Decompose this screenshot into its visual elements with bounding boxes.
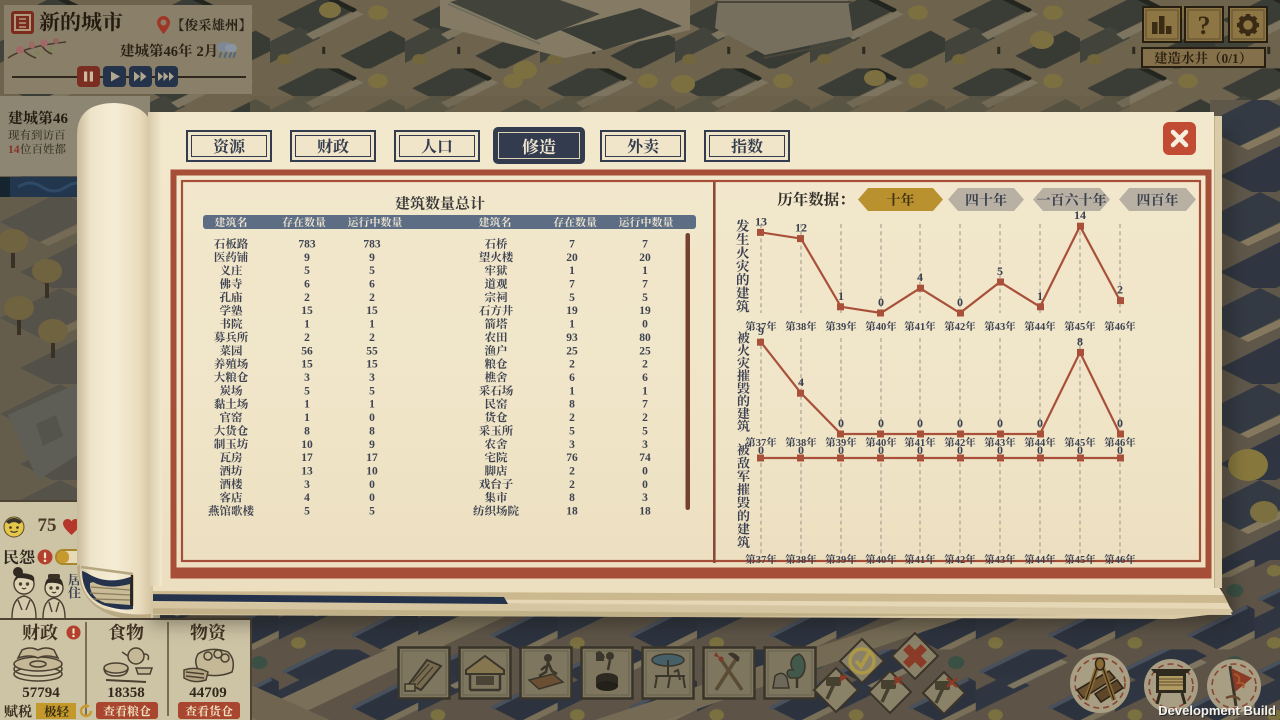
svg-text:6: 6 bbox=[304, 279, 310, 291]
svg-text:0: 0 bbox=[997, 443, 1003, 457]
svg-text:1: 1 bbox=[569, 319, 575, 331]
svg-text:9: 9 bbox=[304, 252, 310, 264]
svg-text:0: 0 bbox=[1037, 443, 1043, 457]
svg-text:1: 1 bbox=[304, 319, 310, 331]
svg-text:41: 41 bbox=[915, 322, 926, 333]
svg-text:45: 45 bbox=[1075, 555, 1086, 566]
svg-text:17: 17 bbox=[366, 452, 378, 464]
svg-text:6: 6 bbox=[569, 372, 575, 384]
svg-text:0: 0 bbox=[957, 443, 963, 457]
svg-text:19: 19 bbox=[639, 305, 651, 317]
svg-text:1: 1 bbox=[369, 399, 375, 411]
svg-text:6: 6 bbox=[642, 372, 648, 384]
svg-text:39: 39 bbox=[836, 555, 847, 566]
svg-text:2: 2 bbox=[369, 332, 375, 344]
svg-text:0: 0 bbox=[878, 295, 884, 309]
svg-text:3: 3 bbox=[304, 372, 310, 384]
svg-text:2: 2 bbox=[569, 359, 575, 371]
svg-text:46: 46 bbox=[1115, 555, 1126, 566]
svg-text:0: 0 bbox=[642, 465, 648, 477]
svg-text:55: 55 bbox=[366, 345, 378, 357]
svg-text:56: 56 bbox=[301, 345, 313, 357]
svg-text:0: 0 bbox=[1077, 443, 1083, 457]
svg-text:0: 0 bbox=[838, 416, 844, 430]
svg-text:13: 13 bbox=[301, 465, 313, 477]
svg-text:2: 2 bbox=[1117, 283, 1123, 297]
svg-text:9: 9 bbox=[369, 252, 375, 264]
svg-text:2: 2 bbox=[304, 292, 310, 304]
svg-text:1: 1 bbox=[304, 399, 310, 411]
svg-text:1: 1 bbox=[838, 289, 844, 303]
svg-text:9: 9 bbox=[758, 324, 764, 338]
svg-text:6: 6 bbox=[369, 279, 375, 291]
svg-text:2: 2 bbox=[642, 412, 648, 424]
svg-text:0: 0 bbox=[1117, 443, 1123, 457]
svg-text:38: 38 bbox=[796, 555, 807, 566]
svg-text:3: 3 bbox=[569, 439, 575, 451]
svg-text:783: 783 bbox=[298, 239, 316, 251]
svg-text:9: 9 bbox=[369, 439, 375, 451]
svg-text:8: 8 bbox=[1077, 334, 1083, 348]
svg-text:17: 17 bbox=[301, 452, 313, 464]
svg-text:4: 4 bbox=[798, 375, 804, 389]
svg-text:15: 15 bbox=[301, 305, 313, 317]
svg-text:8: 8 bbox=[304, 425, 310, 437]
svg-text:42: 42 bbox=[955, 555, 966, 566]
svg-text:783: 783 bbox=[363, 239, 381, 251]
svg-text:0: 0 bbox=[878, 416, 884, 430]
svg-text:5: 5 bbox=[304, 506, 310, 518]
svg-text:5: 5 bbox=[569, 292, 575, 304]
svg-text:0: 0 bbox=[997, 416, 1003, 430]
svg-text:25: 25 bbox=[566, 345, 578, 357]
svg-text:5: 5 bbox=[569, 425, 575, 437]
svg-text:0: 0 bbox=[369, 479, 375, 491]
svg-text:19: 19 bbox=[566, 305, 578, 317]
svg-text:93: 93 bbox=[566, 332, 578, 344]
svg-text:43: 43 bbox=[995, 555, 1006, 566]
svg-text:0: 0 bbox=[369, 492, 375, 504]
svg-text:25: 25 bbox=[639, 345, 651, 357]
svg-text:41: 41 bbox=[915, 555, 926, 566]
svg-text:3: 3 bbox=[642, 439, 648, 451]
svg-text:37: 37 bbox=[756, 555, 767, 566]
svg-text:14: 14 bbox=[8, 144, 20, 156]
svg-text:0: 0 bbox=[957, 295, 963, 309]
svg-text:3: 3 bbox=[369, 372, 375, 384]
svg-text:0: 0 bbox=[642, 479, 648, 491]
svg-text:1: 1 bbox=[1037, 289, 1043, 303]
svg-text:40: 40 bbox=[876, 555, 887, 566]
svg-text:10: 10 bbox=[301, 439, 313, 451]
svg-text:3: 3 bbox=[642, 492, 648, 504]
svg-text:80: 80 bbox=[639, 332, 651, 344]
svg-text:5: 5 bbox=[369, 385, 375, 397]
svg-text:44: 44 bbox=[1035, 322, 1046, 333]
svg-text:2: 2 bbox=[569, 479, 575, 491]
svg-text:5: 5 bbox=[997, 264, 1003, 278]
svg-text:0: 0 bbox=[878, 443, 884, 457]
svg-text:39: 39 bbox=[836, 322, 847, 333]
svg-text:2: 2 bbox=[304, 332, 310, 344]
svg-text:15: 15 bbox=[366, 305, 378, 317]
svg-text:46: 46 bbox=[1115, 322, 1126, 333]
svg-text:0: 0 bbox=[642, 319, 648, 331]
svg-text:5: 5 bbox=[369, 506, 375, 518]
svg-text:5: 5 bbox=[369, 265, 375, 277]
svg-text:15: 15 bbox=[301, 359, 313, 371]
svg-text:2: 2 bbox=[569, 465, 575, 477]
svg-text:2: 2 bbox=[369, 292, 375, 304]
svg-text:38: 38 bbox=[796, 322, 807, 333]
svg-text:1: 1 bbox=[642, 385, 648, 397]
svg-text:2: 2 bbox=[197, 44, 204, 60]
svg-text:2: 2 bbox=[569, 412, 575, 424]
svg-text:13: 13 bbox=[755, 214, 767, 228]
svg-text:74: 74 bbox=[639, 452, 651, 464]
svg-text:18: 18 bbox=[639, 506, 651, 518]
svg-text:7: 7 bbox=[569, 239, 575, 251]
svg-text:8: 8 bbox=[369, 425, 375, 437]
svg-text:0/1: 0/1 bbox=[1221, 51, 1239, 66]
svg-text:12: 12 bbox=[795, 221, 807, 235]
svg-text:0: 0 bbox=[369, 412, 375, 424]
svg-text:8: 8 bbox=[569, 399, 575, 411]
svg-text:5: 5 bbox=[642, 292, 648, 304]
svg-text:7: 7 bbox=[642, 399, 648, 411]
svg-text:43: 43 bbox=[995, 322, 1006, 333]
svg-text:1: 1 bbox=[569, 265, 575, 277]
svg-text:0: 0 bbox=[1037, 416, 1043, 430]
svg-text:5: 5 bbox=[304, 385, 310, 397]
svg-text:18: 18 bbox=[566, 506, 578, 518]
svg-text:0: 0 bbox=[798, 443, 804, 457]
svg-text:45: 45 bbox=[1075, 322, 1086, 333]
svg-text:20: 20 bbox=[566, 252, 578, 264]
svg-text:?: ? bbox=[1198, 11, 1211, 40]
svg-text:4: 4 bbox=[917, 270, 923, 284]
svg-text:1: 1 bbox=[304, 412, 310, 424]
svg-text:0: 0 bbox=[758, 443, 764, 457]
svg-text:44: 44 bbox=[1035, 555, 1046, 566]
svg-text:2: 2 bbox=[642, 359, 648, 371]
svg-text:1: 1 bbox=[642, 265, 648, 277]
svg-text:5: 5 bbox=[642, 425, 648, 437]
svg-text:46: 46 bbox=[163, 44, 177, 60]
svg-text:42: 42 bbox=[955, 322, 966, 333]
svg-text:7: 7 bbox=[642, 279, 648, 291]
svg-text:10: 10 bbox=[366, 465, 378, 477]
svg-text:8: 8 bbox=[569, 492, 575, 504]
svg-text:0: 0 bbox=[917, 416, 923, 430]
svg-text:5: 5 bbox=[304, 265, 310, 277]
svg-text:0: 0 bbox=[957, 416, 963, 430]
svg-text:14: 14 bbox=[1074, 208, 1086, 222]
svg-text:20: 20 bbox=[639, 252, 651, 264]
svg-text:15: 15 bbox=[366, 359, 378, 371]
svg-text:4: 4 bbox=[304, 492, 310, 504]
svg-text:7: 7 bbox=[642, 239, 648, 251]
svg-text:40: 40 bbox=[876, 322, 887, 333]
svg-text:0: 0 bbox=[917, 443, 923, 457]
svg-text:3: 3 bbox=[304, 479, 310, 491]
svg-text:1: 1 bbox=[569, 385, 575, 397]
svg-text:0: 0 bbox=[838, 443, 844, 457]
svg-text:0: 0 bbox=[1117, 416, 1123, 430]
svg-text:76: 76 bbox=[566, 452, 578, 464]
svg-text:7: 7 bbox=[569, 279, 575, 291]
svg-text:46: 46 bbox=[53, 111, 69, 127]
svg-text:1: 1 bbox=[369, 319, 375, 331]
